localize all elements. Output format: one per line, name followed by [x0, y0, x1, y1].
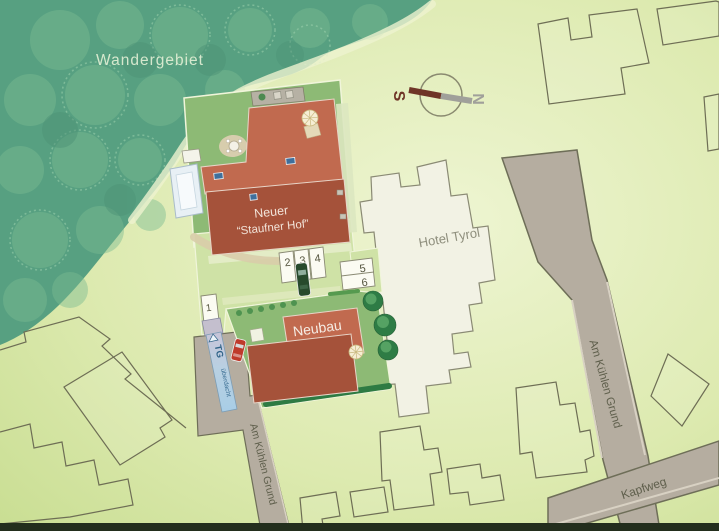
utility-box-1 — [274, 92, 282, 100]
bottom-border — [0, 523, 719, 531]
compass-north-label: N — [469, 93, 486, 105]
outline-building-bottom-b — [350, 487, 388, 517]
forest-label: Wandergebiet — [96, 52, 204, 69]
utility-box-2 — [286, 91, 294, 99]
patio-table — [229, 141, 239, 151]
site-plan: Wandergebiet Am Kühlen Grund Am Kühlen G… — [0, 0, 719, 531]
site-plan-canvas: Wandergebiet Am Kühlen Grund Am Kühlen G… — [0, 0, 719, 531]
utility-strip-shrub — [259, 94, 266, 101]
compass-south-label: S — [390, 91, 407, 102]
neubau-terrace — [250, 328, 264, 342]
outbuilding — [182, 149, 201, 163]
neubau-main-wing — [247, 334, 358, 403]
